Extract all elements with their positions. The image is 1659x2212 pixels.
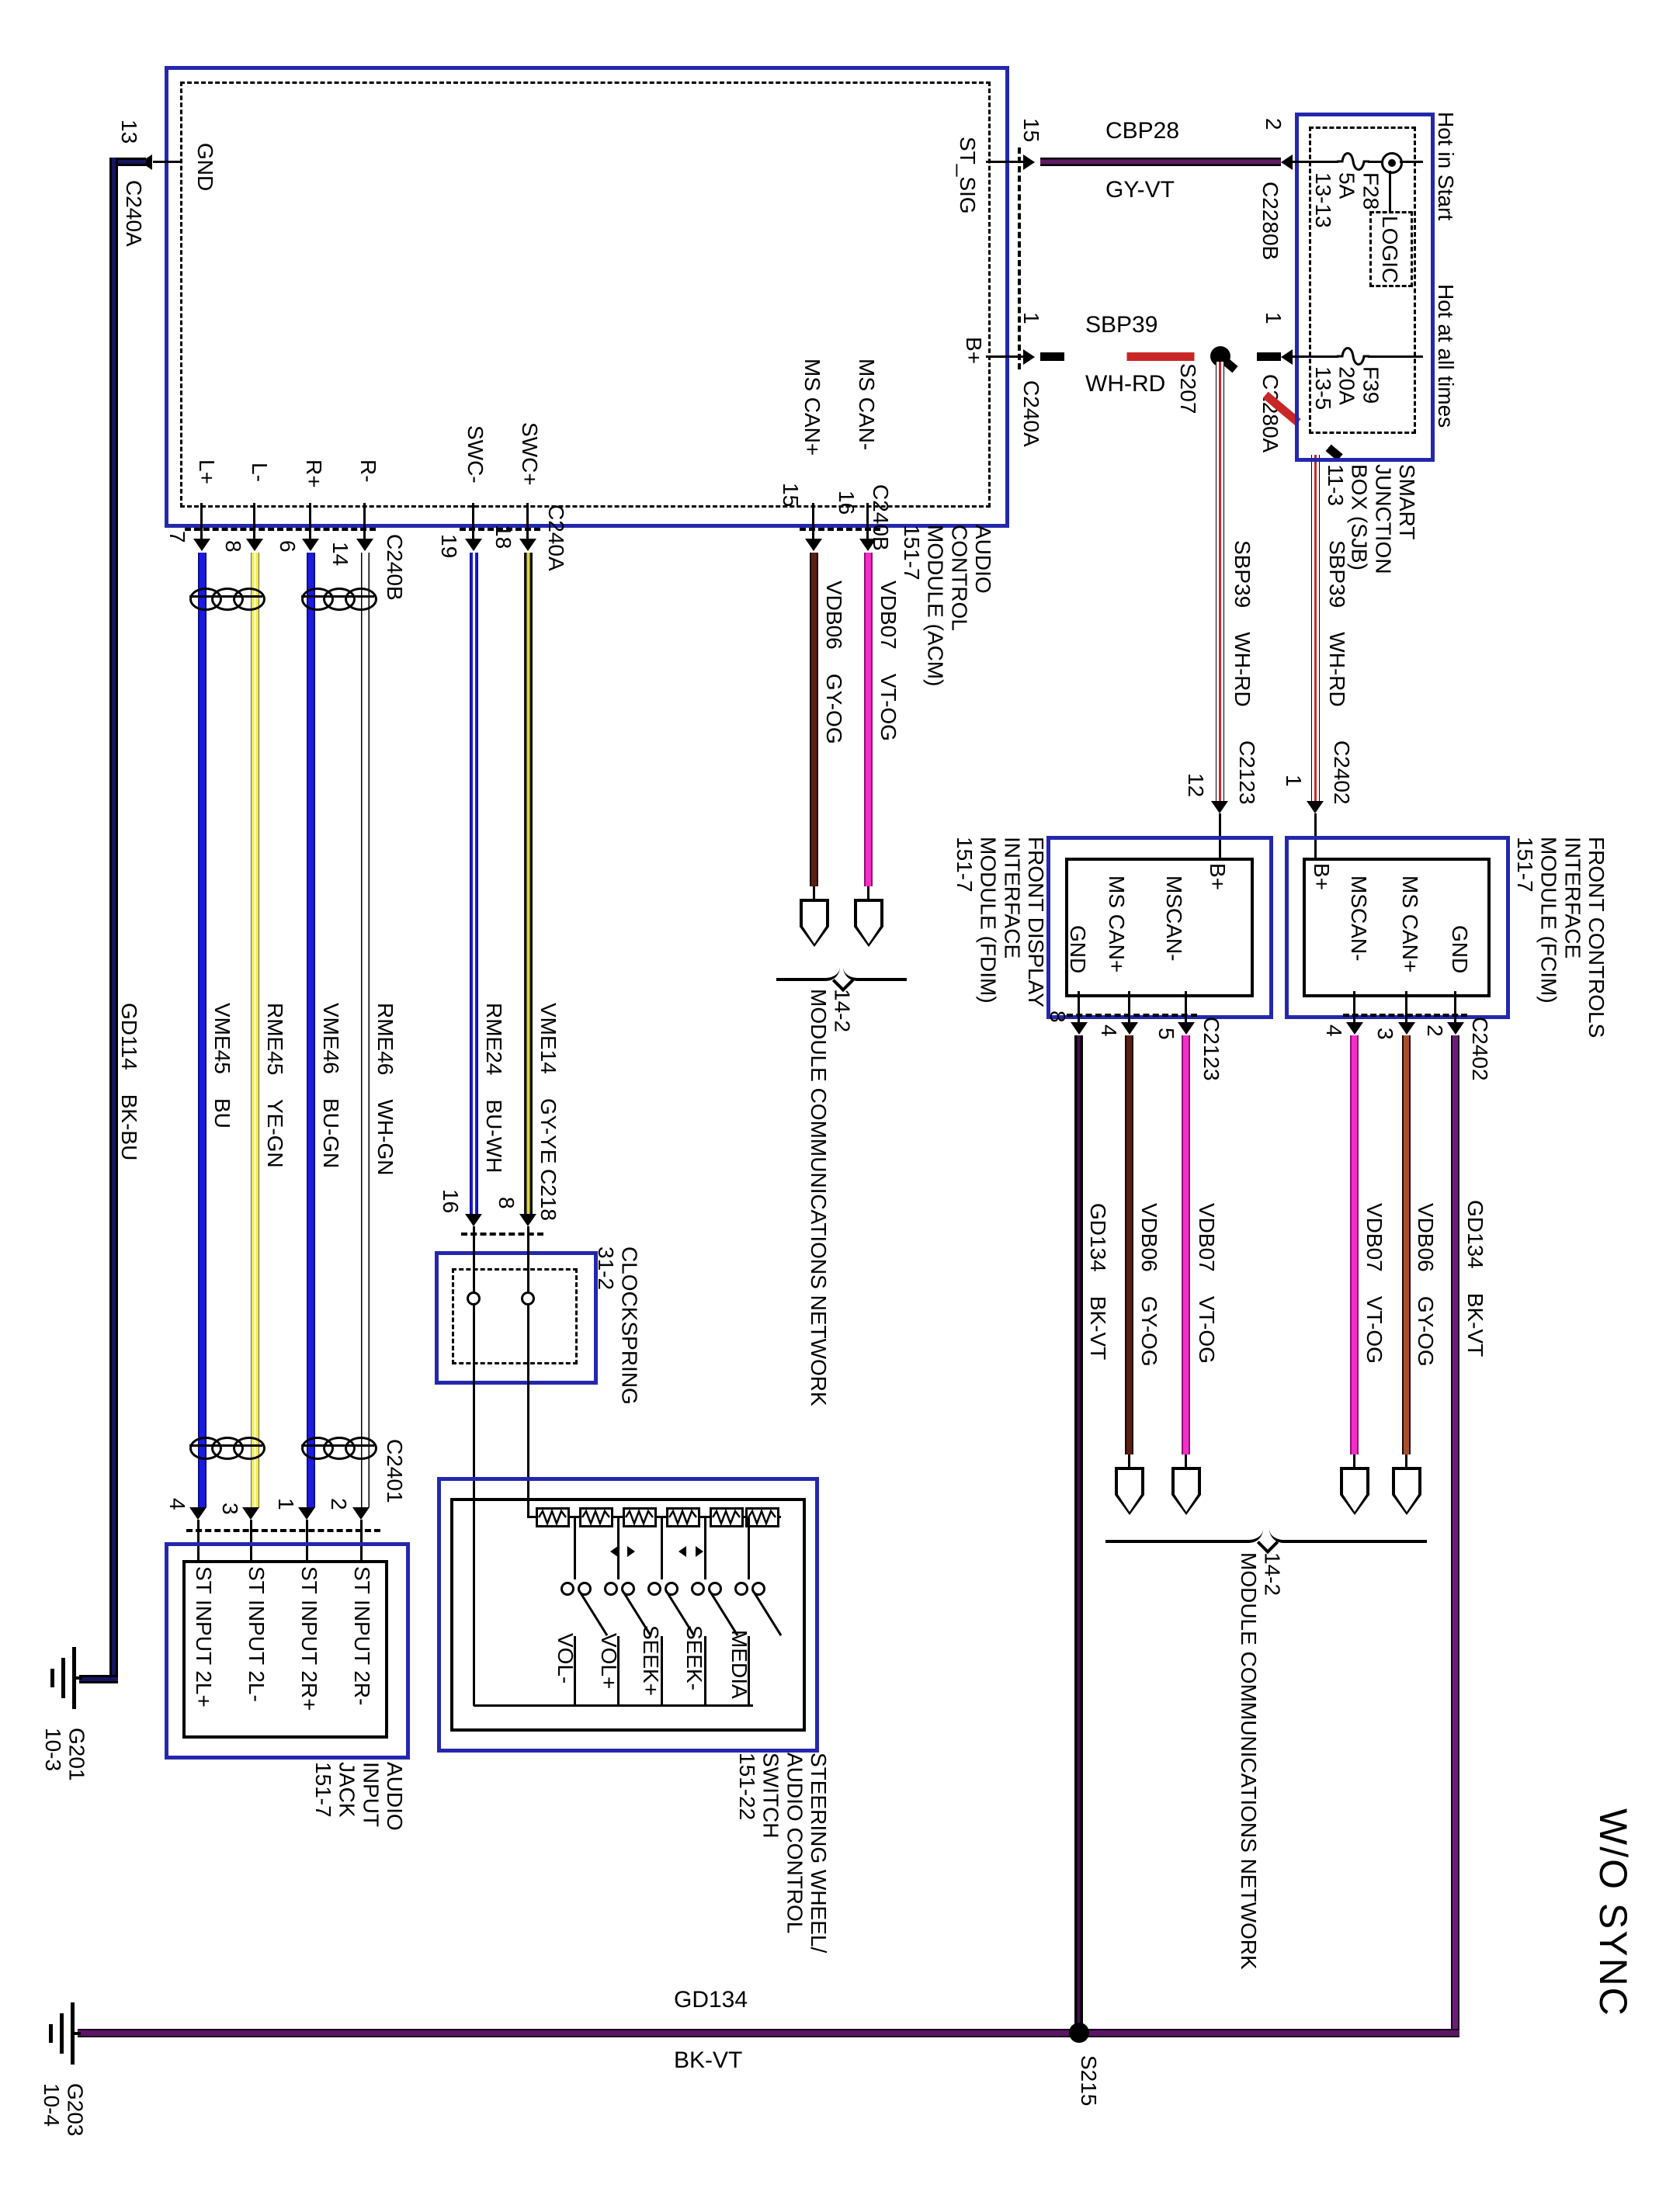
splice-s215-label: S215	[1076, 2055, 1100, 2106]
seek-arrow-left-icon-1	[610, 1546, 618, 1557]
jack-pin3-chevron-icon	[242, 1507, 259, 1520]
fdim-canp-stub	[1128, 991, 1130, 1022]
f28-line-right	[1400, 161, 1423, 163]
fcim-gnd-label: GND	[1447, 925, 1471, 973]
wire-vme46	[307, 553, 315, 1507]
clockspring-feed-left	[473, 1226, 475, 1295]
c240a-label-swc: C240A	[543, 504, 567, 571]
sw5-stub-top	[748, 1517, 750, 1579]
f28-line-mid	[1368, 161, 1382, 163]
pin16-number: 16	[834, 491, 858, 515]
vdb07-fcim-stub	[1353, 1454, 1355, 1467]
wire-vdb07-acm-label: VDB07 VT-OG	[876, 581, 900, 741]
acm-rminus-label: R-	[356, 459, 380, 483]
c2123-label-top: C2123	[1234, 740, 1258, 805]
wire-vme14	[524, 553, 533, 1214]
acm-rplus-label: R+	[301, 459, 325, 488]
fcim-pin3-number: 3	[1373, 1028, 1397, 1040]
vdb07-fdim-stub	[1185, 1454, 1187, 1467]
c2402-label-top: C2402	[1329, 740, 1353, 805]
c218-pin16-chevron-icon	[465, 1214, 482, 1226]
twisted-pair-icon-top-left	[189, 587, 262, 607]
network-label-right: 14-2 MODULE COMMUNICATIONS NETWORK	[1236, 1552, 1284, 1970]
wire-sbp39-branch-fdim	[1216, 362, 1224, 801]
stsig-chevron-icon	[1023, 154, 1035, 170]
wire-vdb06-fcim	[1402, 1035, 1411, 1454]
fcim-mscanplus-label: MS CAN+	[1397, 875, 1421, 973]
wire-rme46	[361, 553, 370, 1507]
wire-sbp39	[1040, 352, 1281, 361]
wire-vme46-label: VME46 BU-GN	[318, 1003, 342, 1168]
wire-sbp39-name: SBP39	[1085, 312, 1157, 338]
seek-arrow-right-icon-2	[696, 1546, 703, 1557]
wire-sbp39-color: WH-RD	[1085, 371, 1165, 397]
swc-seek-minus-label: SEEK-	[682, 1625, 706, 1690]
acm-mscanminus-label: MS CAN-	[854, 359, 878, 450]
jack-in-2r-plus: ST INPUT 2R+	[297, 1566, 321, 1711]
c240a-connector-dashed	[1018, 147, 1021, 369]
fcim-gnd-stub	[1454, 991, 1456, 1022]
swc-switch-inner-box	[450, 1498, 806, 1732]
jack-pin1-number: 1	[273, 1498, 297, 1510]
c218-pin16-number: 16	[438, 1189, 462, 1213]
f28-line-left	[1290, 161, 1338, 163]
swc-left-feed	[473, 1500, 475, 1706]
wire-rme46-label: RME46 WH-GN	[373, 1003, 397, 1175]
swc-vol-minus-label: VOL-	[553, 1633, 577, 1683]
wire-vdb06-fcim-label: VDB06 GY-OG	[1413, 1203, 1437, 1367]
jack-in-2r-minus: ST INPUT 2R-	[349, 1566, 373, 1705]
c2123-dashed	[1067, 1014, 1197, 1017]
jack-pin1-chevron-icon	[298, 1507, 315, 1520]
clockspring-terminal-right-icon	[521, 1291, 535, 1305]
acm-mscanplus-label: MS CAN+	[800, 359, 824, 456]
stsig-pin-number: 15	[1019, 118, 1043, 142]
offpage-arrow-icon-net-1	[1115, 1467, 1144, 1515]
bplus-pin-number: 1	[1019, 312, 1043, 324]
pin15-chevron-icon	[805, 539, 822, 551]
wire-sbp39-branch-fcim	[1311, 455, 1320, 801]
fdim-pin8-number: 8	[1045, 1011, 1069, 1023]
pin6-stub	[309, 503, 311, 539]
fdim-gnd-stub	[1078, 991, 1080, 1022]
jack-in-2l-minus: ST INPUT 2L-	[244, 1566, 268, 1702]
fdim-canm-stub	[1185, 991, 1187, 1022]
acm-gnd-label: GND	[193, 143, 217, 191]
acm-title: AUDIO CONTROL MODULE (ACM) 151-7	[899, 525, 994, 686]
f39-line-right	[1368, 355, 1423, 358]
pin18-stub	[526, 503, 529, 539]
fcim-pin4-number: 4	[1321, 1025, 1345, 1037]
wire-rme45	[251, 553, 259, 1507]
twisted-pair-icon-top-right	[301, 587, 374, 607]
seek-arrow-left-icon-2	[679, 1546, 686, 1557]
fdim-pin5-chevron-icon	[1178, 1022, 1195, 1035]
pin7-stub	[200, 503, 203, 539]
c2402-dashed	[1343, 1014, 1467, 1017]
c240b-dashed-can	[800, 528, 880, 531]
wire-gd134-color: BK-VT	[674, 2047, 742, 2074]
wire-vdb06-fdim-label: VDB06 GY-OG	[1137, 1203, 1161, 1367]
wire-vme14-label: VME14 GY-YE	[536, 1003, 560, 1164]
pin14-number: 14	[328, 542, 352, 566]
jack-pin2-chevron-icon	[352, 1507, 370, 1520]
acm-stsig-label: ST_SIG	[955, 137, 979, 214]
wire-gd114-vertical	[109, 158, 118, 1683]
fdim-mscanminus-label: MSCAN-	[1161, 875, 1185, 961]
vdb06-acm-stub	[813, 886, 815, 899]
twisted-pair-icon-bottom-right	[301, 1436, 374, 1456]
fuse-f39-icon	[1337, 344, 1369, 369]
f28-terminal-icon	[1381, 152, 1403, 174]
wire-vdb07-fdim-label: VDB07 VT-OG	[1194, 1203, 1218, 1364]
c240a-dashed-swc	[460, 528, 540, 531]
wire-rme24	[470, 553, 478, 1214]
c240b-dashed-audio	[185, 528, 376, 531]
wire-gd114-label: GD114 BK-BU	[116, 1003, 141, 1160]
resistor-icon-2	[579, 1507, 613, 1527]
gnd-conn-label: C240A	[121, 180, 145, 247]
resistor-icon-6	[745, 1507, 779, 1527]
wire-gd134-name: GD134	[674, 1987, 748, 2013]
fuse-f28-label: F28 5A 13-13	[1310, 172, 1382, 228]
pin14-stub	[363, 503, 366, 539]
wire-vdb07-fdim	[1182, 1035, 1190, 1454]
pin19-chevron-icon	[465, 539, 482, 551]
pin19-stub	[472, 503, 474, 539]
bplus-chevron-icon	[1023, 349, 1035, 365]
acm-swcplus-label: SWC+	[517, 422, 541, 486]
wire-rme24-label: RME24 BU-WH	[481, 1003, 505, 1173]
network-label-left: 14-2 MODULE COMMUNICATIONS NETWORK	[806, 989, 854, 1406]
c2123-label-bottom: C2123	[1199, 1017, 1223, 1081]
resistor-icon-3	[623, 1507, 657, 1527]
clockspring-out-right	[527, 1305, 529, 1500]
fcim-pin2-chevron-icon	[1447, 1022, 1464, 1035]
c218-label: C218	[536, 1169, 560, 1221]
pin19-number: 19	[436, 534, 460, 558]
fcim-bplus-chevron-icon	[1307, 801, 1324, 813]
fdim-bplus-chevron-icon	[1211, 801, 1228, 813]
pin15-stub	[812, 503, 814, 539]
fcim-title: FRONT CONTROLS INTERFACE MODULE (FCIM) 1…	[1512, 837, 1608, 1038]
wire-gd134-fdim-label: GD134 BK-VT	[1085, 1203, 1109, 1360]
fcim-pin4-chevron-icon	[1346, 1022, 1363, 1035]
ground-g203-icon	[43, 2001, 81, 2066]
logic-feed-line	[1389, 171, 1391, 211]
gnd-pin-line	[153, 161, 181, 163]
sw1-contact-a-icon	[561, 1582, 574, 1596]
wire-vdb06-acm-label: VDB06 GY-OG	[821, 581, 845, 744]
sw3-stub-top	[661, 1517, 663, 1579]
splice-s207-label: S207	[1175, 363, 1199, 414]
swc-seek-plus-label: SEEK+	[638, 1625, 662, 1696]
twisted-pair-icon-bottom-left	[189, 1436, 262, 1456]
pin15-number: 15	[778, 483, 802, 507]
jack-pin4-chevron-icon	[189, 1507, 207, 1520]
vdb06-fdim-stub	[1128, 1454, 1130, 1467]
sw2-contact-a-icon	[604, 1582, 618, 1596]
wire-gd134-fdim	[1074, 1035, 1083, 2032]
sw3-contact-a-icon	[647, 1582, 661, 1596]
network-brace-right	[1105, 1529, 1427, 1543]
wire-cbp28	[1040, 158, 1281, 166]
sw1-stub-top	[574, 1517, 576, 1579]
sw4-stub-top	[704, 1517, 706, 1579]
acm-lminus-label: L-	[247, 463, 271, 482]
sjb-hot-at-all-times: Hot at all times	[1433, 284, 1457, 428]
resistor-icon-5	[710, 1507, 744, 1527]
fuse-f39-label: F39 20A 13-5	[1310, 366, 1382, 410]
wire-rme45-label: RME45 YE-GN	[262, 1003, 286, 1168]
wire-cbp28-name: CBP28	[1105, 118, 1179, 144]
offpage-arrow-icon-net-2	[1171, 1467, 1201, 1515]
c240b-label-can: C240B	[868, 484, 892, 551]
c2401-dashed	[186, 1529, 380, 1532]
swc-media-label: MEDIA	[727, 1630, 751, 1699]
fcim-pin2-number: 2	[1422, 1025, 1446, 1037]
clockspring-out-left	[473, 1305, 475, 1500]
f39-line-left	[1290, 355, 1338, 358]
fdim-bplus-label: B+	[1205, 863, 1229, 890]
jack-pin2-number: 2	[326, 1498, 350, 1510]
acm-bplus-label: B+	[961, 337, 985, 364]
wo-sync-label: W/O SYNC	[1591, 1808, 1634, 2017]
ground-g203-label: G203 10-4	[39, 2083, 87, 2137]
ground-g201-icon	[45, 1645, 82, 1711]
wire-vme45-label: VME45 BU	[210, 1003, 234, 1129]
cbp28-pin2-number: 2	[1261, 118, 1285, 130]
wire-vdb07-fcim-label: VDB07 VT-OG	[1362, 1203, 1386, 1364]
wire-gd134-fcim	[1451, 1035, 1459, 2032]
swc-switch-title: STEERING WHEEL/ AUDIO CONTROL SWITCH 151…	[734, 1753, 830, 1953]
sw4-contact-a-icon	[691, 1582, 705, 1596]
pin7-number: 7	[165, 531, 189, 543]
wire-vme45	[198, 553, 207, 1507]
c240a-label-right: C240A	[1019, 380, 1043, 447]
c218-pin8-number: 8	[494, 1197, 518, 1209]
jack-title: AUDIO INPUT JACK 151-7	[311, 1762, 406, 1831]
sw5-contact-a-icon	[734, 1582, 748, 1596]
clockspring-terminal-left-icon	[467, 1291, 481, 1305]
clockspring-title: CLOCKSPRING 31-2	[593, 1246, 641, 1405]
acm-swcminus-label: SWC-	[463, 425, 487, 484]
vdb07-acm-stub	[867, 886, 869, 899]
jack-pin4-number: 4	[165, 1498, 189, 1510]
ground-g201-label: G201 10-3	[40, 1728, 89, 1781]
acm-lplus-label: L+	[194, 459, 218, 484]
sjb-hot-in-start: Hot in Start	[1433, 112, 1457, 220]
wire-vdb06-acm	[810, 553, 818, 886]
wire-vdb06-fdim	[1125, 1035, 1133, 1454]
fcim-bplus-pin-number: 1	[1281, 775, 1305, 787]
fcim-bplus-label: B+	[1309, 863, 1333, 890]
fcim-pin3-chevron-icon	[1398, 1022, 1415, 1035]
offpage-arrow-icon-acm-1	[800, 899, 829, 947]
pin8-chevron-icon	[246, 539, 263, 551]
wire-vdb07-fcim	[1350, 1035, 1359, 1454]
wire-cbp28-color: GY-VT	[1105, 177, 1175, 203]
network-brace-left	[776, 967, 907, 981]
swc-vol-plus-label: VOL+	[596, 1633, 620, 1689]
fcim-mscanminus-label: MSCAN-	[1346, 875, 1370, 961]
fcim-canm-stub	[1353, 991, 1355, 1022]
c2401-label: C2401	[382, 1439, 406, 1503]
gnd-pin-number: 13	[116, 120, 141, 144]
c240b-label-audio: C240B	[382, 534, 406, 601]
clockspring-feed-right	[527, 1226, 529, 1295]
fdim-pin4-number: 4	[1096, 1025, 1120, 1037]
fdim-bplus-pin-number: 12	[1183, 773, 1207, 797]
pin14-chevron-icon	[356, 539, 373, 551]
fdim-gnd-label: GND	[1065, 925, 1089, 973]
fdim-pin5-number: 5	[1154, 1028, 1178, 1040]
fdim-title: FRONT DISPLAY INTERFACE MODULE (FDIM) 15…	[952, 837, 1047, 1007]
splice-s215	[1069, 2023, 1089, 2043]
pin6-number: 6	[275, 540, 299, 553]
fcim-canp-stub	[1405, 991, 1407, 1022]
pin6-chevron-icon	[302, 539, 319, 551]
wire-gd134-horizontal	[78, 2029, 1459, 2037]
fdim-pin4-chevron-icon	[1121, 1022, 1138, 1035]
fdim-pin8-chevron-icon	[1071, 1022, 1088, 1035]
wire-sbp39-fdim-label: SBP39 WH-RD	[1230, 540, 1254, 707]
vdb06-fcim-stub	[1405, 1454, 1407, 1467]
wire-gd114-top	[115, 158, 146, 166]
jack-pin3-number: 3	[217, 1503, 241, 1515]
offpage-arrow-icon-net-3	[1340, 1467, 1369, 1515]
seek-arrow-right-icon-1	[627, 1546, 635, 1557]
sjb-title: SMART JUNCTION BOX (SJB) 11-3	[1323, 464, 1418, 574]
jack-in-2l-plus: ST INPUT 2L+	[191, 1566, 215, 1708]
wiring-diagram: GND AUDIO CONTROL MODULE (ACM) 151-7 13 …	[0, 0, 1659, 2212]
sbp39-pin1-number: 1	[1261, 312, 1285, 324]
pin8-stub	[253, 503, 255, 539]
clockspring-dashed-box	[452, 1268, 578, 1364]
pin8-number: 8	[220, 540, 245, 553]
offpage-arrow-icon-net-4	[1392, 1467, 1421, 1515]
pin18-chevron-icon	[519, 539, 536, 551]
pin7-chevron-icon	[193, 539, 210, 551]
fdim-mscanplus-label: MS CAN+	[1104, 875, 1128, 973]
c218-pin8-chevron-icon	[519, 1214, 536, 1226]
wire-vdb07-acm	[864, 553, 873, 886]
resistor-icon-1	[536, 1507, 570, 1527]
swc-bottom-rail	[474, 1704, 753, 1707]
wire-gd134-fcim-label: GD134 BK-VT	[1463, 1200, 1487, 1357]
fuse-f28-icon	[1337, 149, 1369, 174]
wire-gd114-bottom	[79, 1675, 118, 1683]
c2280b-label: C2280B	[1258, 182, 1282, 260]
c2402-label-bottom: C2402	[1467, 1017, 1491, 1081]
resistor-icon-4	[666, 1507, 700, 1527]
offpage-arrow-icon-acm-2	[854, 899, 883, 947]
